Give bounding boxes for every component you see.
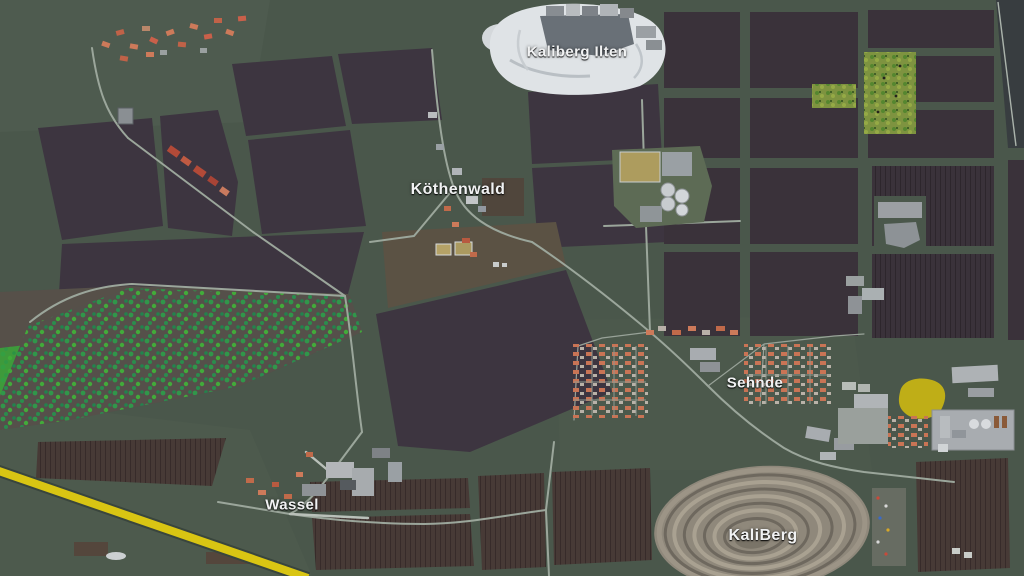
small-pond	[106, 552, 126, 560]
map-screenshot: Kaliberg Ilten Köthenwald Sehnde Wassel …	[0, 0, 1024, 576]
map-image	[0, 0, 1024, 576]
salt-heap-kaliberg-ilten	[482, 4, 666, 95]
biogas-plant	[612, 146, 712, 228]
